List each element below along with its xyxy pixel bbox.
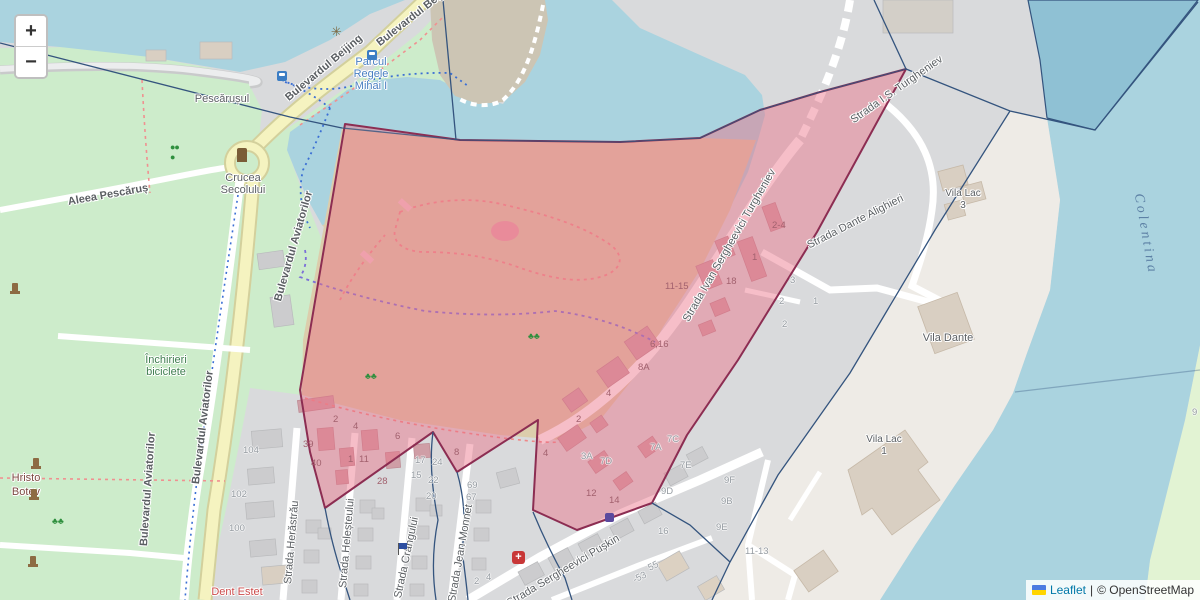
dog-park-icon: ●●● bbox=[170, 142, 179, 162]
house-number: 7C bbox=[667, 435, 679, 445]
leaflet-link[interactable]: Leaflet bbox=[1050, 583, 1086, 597]
statue-icon bbox=[33, 458, 39, 467]
place-label-parcul-2: Regele bbox=[354, 68, 389, 80]
house-number: 15 bbox=[411, 471, 422, 481]
bus-stop-icon bbox=[277, 71, 287, 81]
osm-attribution: © OpenStreetMap bbox=[1097, 583, 1194, 597]
place-label-vila-lac3-2: 3 bbox=[960, 200, 966, 211]
house-number: 12 bbox=[586, 489, 597, 499]
house-number: 9 bbox=[1192, 408, 1197, 418]
picnic-icon: ♣♣ bbox=[365, 371, 377, 381]
hospital-icon: + bbox=[512, 551, 525, 564]
house-number: 9E bbox=[716, 523, 728, 533]
place-label-dent-estet: Dent Estet bbox=[211, 586, 262, 598]
place-label-hristo-1: Hristo bbox=[12, 472, 41, 484]
house-number: 3 bbox=[790, 276, 795, 286]
house-number: 1 bbox=[752, 253, 757, 263]
house-number: 40 bbox=[311, 459, 322, 469]
place-label-vila-lac3-1: Vila Lac bbox=[945, 188, 980, 199]
embassy-flag-icon bbox=[398, 543, 408, 555]
house-number: 14 bbox=[609, 496, 620, 506]
zoom-in-button[interactable]: + bbox=[16, 16, 46, 47]
house-number: 1 bbox=[348, 455, 353, 465]
statue-icon bbox=[30, 556, 36, 565]
house-number: 18 bbox=[726, 277, 737, 287]
house-number: 28 bbox=[377, 477, 388, 487]
house-number: 1 bbox=[813, 297, 818, 307]
place-label-crucea-2: Secolului bbox=[221, 184, 266, 196]
attribution-separator: | bbox=[1090, 583, 1093, 597]
house-number: 11-13 bbox=[745, 547, 769, 557]
house-number: 4 bbox=[486, 573, 491, 583]
house-number: 11-15 bbox=[665, 282, 689, 292]
house-number: 102 bbox=[231, 490, 247, 500]
attribution-bar: Leaflet | © OpenStreetMap bbox=[1026, 580, 1200, 600]
place-label-inchirieri-1: Închirieri bbox=[145, 354, 187, 366]
house-number: 39 bbox=[303, 440, 314, 450]
community-icon bbox=[605, 513, 614, 522]
house-number: 20 bbox=[426, 492, 437, 502]
place-label-vila-lac1-1: Vila Lac bbox=[866, 434, 901, 445]
zoom-out-button[interactable]: − bbox=[16, 47, 46, 77]
statue-icon bbox=[31, 489, 37, 498]
house-number: 104 bbox=[243, 446, 259, 456]
house-number: 3A bbox=[581, 452, 593, 462]
house-number: 2 bbox=[779, 297, 784, 307]
map-canvas bbox=[0, 0, 1200, 600]
house-number: 69 bbox=[467, 481, 478, 491]
leaflet-map[interactable]: Bulevardul Beijing Bulevardul Beijing Bu… bbox=[0, 0, 1200, 600]
tree-icon: ✳ bbox=[331, 24, 342, 40]
ukraine-flag-icon bbox=[1032, 585, 1046, 595]
house-number: 6 bbox=[395, 432, 400, 442]
bus-stop-icon bbox=[367, 50, 377, 60]
zoom-control: + − bbox=[14, 14, 48, 79]
house-number: 24 bbox=[432, 458, 443, 468]
house-number: 2 bbox=[782, 320, 787, 330]
picnic-icon: ♣♣ bbox=[528, 331, 540, 341]
house-number: 2 bbox=[576, 415, 581, 425]
house-number: 9B bbox=[721, 497, 733, 507]
house-number: 2-4 bbox=[772, 221, 786, 231]
picnic-icon: ♣♣ bbox=[52, 516, 64, 526]
house-number: 2 bbox=[474, 577, 479, 587]
house-number: 4 bbox=[353, 422, 358, 432]
house-number: 6,16 bbox=[650, 340, 669, 350]
house-number: 9F bbox=[724, 476, 735, 486]
house-number: 4 bbox=[543, 449, 548, 459]
statue-icon bbox=[12, 283, 18, 292]
place-label-inchirieri-2: biciclete bbox=[146, 366, 186, 378]
place-label-vila-lac1-2: 1 bbox=[881, 446, 887, 457]
house-number: 7D bbox=[600, 457, 612, 467]
house-number: 9D bbox=[661, 487, 673, 497]
monument-icon bbox=[237, 148, 247, 162]
house-number: 16 bbox=[658, 527, 669, 537]
house-number: 11 bbox=[359, 455, 369, 465]
place-label-vila-dante: Vila Dante bbox=[923, 332, 974, 344]
house-number: 8A bbox=[638, 363, 650, 373]
place-label-pescarusul: Pescărușul bbox=[195, 93, 249, 105]
house-number: 2 bbox=[333, 415, 338, 425]
house-number: 67 bbox=[466, 493, 477, 503]
house-number: 8 bbox=[454, 448, 459, 458]
house-number: 7A bbox=[650, 443, 662, 453]
house-number: 100 bbox=[229, 524, 245, 534]
house-number: 17 bbox=[415, 456, 426, 466]
house-number: 22 bbox=[428, 476, 439, 486]
house-number: 7E bbox=[680, 461, 692, 471]
house-number: 4 bbox=[606, 389, 611, 399]
place-label-parcul-3: Mihai I bbox=[355, 80, 387, 92]
place-label-crucea-1: Crucea bbox=[225, 172, 260, 184]
